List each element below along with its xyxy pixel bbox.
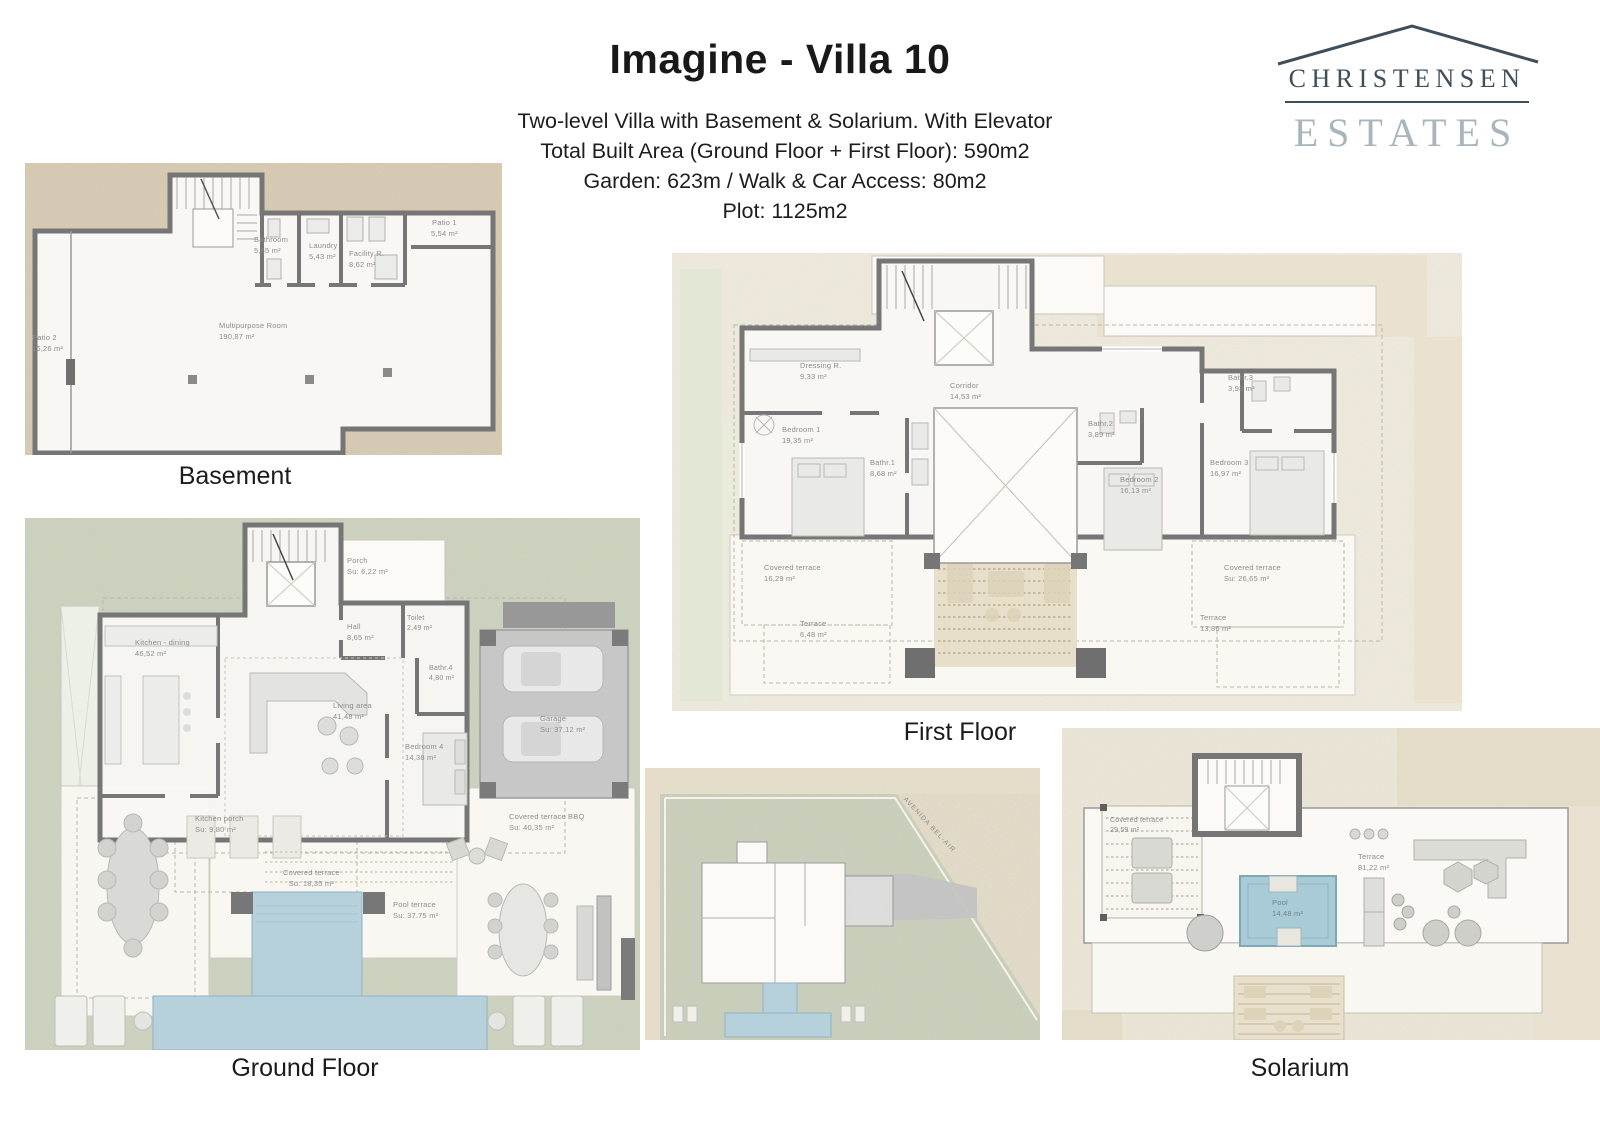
room-name: Bathr.1 — [870, 458, 897, 469]
room-area: 3,93 m² — [1228, 384, 1255, 395]
room-area: 8,68 m² — [870, 469, 897, 480]
room-label: Porch Su: 6,22 m² — [347, 556, 388, 578]
room-label: Bathr.2 3,89 m² — [1088, 419, 1115, 441]
room-name: Dressing R. — [800, 361, 841, 372]
basement-plan: Patio 2 16,26 m² Bathroom 5,65 m² Laundr… — [25, 163, 502, 455]
room-area: 3,89 m² — [1088, 430, 1115, 441]
room-label: Bedroom 2 16,13 m² — [1120, 475, 1159, 497]
room-label: Bathroom 5,65 m² — [254, 235, 288, 257]
room-name: Terrace — [800, 619, 827, 630]
room-name: Garage — [540, 714, 585, 725]
room-area: 13,86 m² — [1200, 624, 1231, 635]
room-area: 9,33 m² — [800, 372, 841, 383]
room-area: 46,52 m² — [135, 649, 190, 660]
logo-subname: ESTATES — [1262, 109, 1552, 156]
room-name: Kitchen porch — [195, 814, 243, 825]
solarium-drawing — [1062, 728, 1600, 1040]
room-name: Bathr.3 — [1228, 373, 1255, 384]
subtitle-line-1: Two-level Villa with Basement & Solarium… — [415, 106, 1155, 136]
room-label: Terrace 81,22 m² — [1358, 852, 1389, 874]
room-area: 16,13 m² — [1120, 486, 1159, 497]
room-area: 29,59 m² — [1110, 826, 1163, 836]
room-label: Covered terrace 29,59 m² — [1110, 816, 1163, 836]
room-label: Bathr.4 4,80 m² — [429, 664, 454, 684]
room-label: Pool 14,48 m² — [1272, 898, 1303, 920]
room-label: Terrace 6,48 m² — [800, 619, 827, 641]
room-name: Multipurpose Room — [219, 321, 287, 332]
room-name: Bedroom 4 — [405, 742, 444, 753]
room-label: Pool terrace Su: 37.75 m² — [393, 900, 438, 922]
room-label: Multipurpose Room 190,87 m² — [219, 321, 287, 343]
room-label: Bathr.1 8,68 m² — [870, 458, 897, 480]
room-label: Garage Su: 37,12 m² — [540, 714, 585, 736]
room-area: 8,65 m² — [347, 633, 374, 644]
ground-floor-drawing — [25, 518, 640, 1050]
room-name: Bathr.4 — [429, 664, 454, 674]
room-label: Laundry 5,43 m² — [309, 241, 338, 263]
room-name: Porch — [347, 556, 388, 567]
room-name: Covered terrace — [764, 563, 821, 574]
subtitle-line-4: Plot: 1125m2 — [415, 196, 1155, 226]
room-label: Patio 2 16,26 m² — [32, 333, 63, 355]
company-logo: CHRISTENSEN ESTATES — [1262, 18, 1552, 156]
caption-basement: Basement — [25, 462, 445, 491]
room-name: Laundry — [309, 241, 338, 252]
ground-floor-plan: Porch Su: 6,22 m² Kitchen - dining 46,52… — [25, 518, 640, 1050]
first-floor-drawing — [672, 253, 1462, 711]
room-area: 5,65 m² — [254, 246, 288, 257]
room-name: Kitchen - dining — [135, 638, 190, 649]
solarium-plan: Covered terrace 29,59 m² Terrace 81,22 m… — [1062, 728, 1600, 1040]
room-label: Living area 41,48 m² — [333, 701, 372, 723]
room-label: Bathr.3 3,93 m² — [1228, 373, 1255, 395]
room-name: Bathroom — [254, 235, 288, 246]
room-area: 8,62 m² — [349, 260, 384, 271]
room-area: Su: 37,12 m² — [540, 725, 585, 736]
room-area: 19,35 m² — [782, 436, 821, 447]
room-name: Covered terrace BBQ — [509, 812, 585, 823]
room-area: Su: 18,35 m² — [283, 879, 340, 890]
room-name: Toilet — [407, 614, 432, 624]
room-label: Kitchen - dining 46,52 m² — [135, 638, 190, 660]
room-label: Covered terrace Su: 26,65 m² — [1224, 563, 1281, 585]
room-label: Bedroom 4 14,38 m² — [405, 742, 444, 764]
room-label: Hall 8,65 m² — [347, 622, 374, 644]
room-label: Corridor 14,53 m² — [950, 381, 981, 403]
room-name: Bedroom 3 — [1210, 458, 1249, 469]
logo-name: CHRISTENSEN — [1285, 62, 1530, 103]
room-name: Living area — [333, 701, 372, 712]
room-area: 4,80 m² — [429, 674, 454, 684]
room-area: 16,26 m² — [32, 344, 63, 355]
room-label: Kitchen porch Su: 9,80 m² — [195, 814, 243, 836]
room-area: 6,48 m² — [800, 630, 827, 641]
caption-ground-floor: Ground Floor — [25, 1054, 585, 1083]
basement-drawing — [25, 163, 502, 455]
room-label: Covered terrace Su: 18,35 m² — [283, 868, 340, 890]
subtitle-line-2: Total Built Area (Ground Floor + First F… — [415, 136, 1155, 166]
room-area: 2,49 m² — [407, 624, 432, 634]
room-name: Patio 2 — [32, 333, 63, 344]
room-area: Su: 26,65 m² — [1224, 574, 1281, 585]
room-area: 14,53 m² — [950, 392, 981, 403]
room-name: Bathr.2 — [1088, 419, 1115, 430]
room-label: Dressing R. 9,33 m² — [800, 361, 841, 383]
room-name: Bedroom 1 — [782, 425, 821, 436]
subtitle: Two-level Villa with Basement & Solarium… — [415, 106, 1155, 226]
first-floor-plan: Dressing R. 9,33 m² Corridor 14,53 m² Be… — [672, 253, 1462, 711]
room-area: 16,29 m² — [764, 574, 821, 585]
site-plan-drawing — [645, 768, 1040, 1040]
room-label: Toilet 2,49 m² — [407, 614, 432, 634]
room-label: Bedroom 1 19,35 m² — [782, 425, 821, 447]
site-plan: AVENIDA BEL-AIR — [645, 768, 1040, 1040]
room-name: Corridor — [950, 381, 981, 392]
subtitle-line-3: Garden: 623m / Walk & Car Access: 80m2 — [415, 166, 1155, 196]
room-area: 16,97 m² — [1210, 469, 1249, 480]
room-label: Bedroom 3 16,97 m² — [1210, 458, 1249, 480]
room-area: 81,22 m² — [1358, 863, 1389, 874]
roof-icon — [1264, 18, 1550, 66]
room-label: Patio 1 5,54 m² — [431, 218, 458, 240]
room-area: 41,48 m² — [333, 712, 372, 723]
room-name: Hall — [347, 622, 374, 633]
caption-solarium: Solarium — [1020, 1054, 1580, 1083]
room-area: Su: 6,22 m² — [347, 567, 388, 578]
room-name: Pool — [1272, 898, 1303, 909]
room-area: Su: 37.75 m² — [393, 911, 438, 922]
room-name: Patio 1 — [431, 218, 458, 229]
room-name: Facility R. — [349, 249, 384, 260]
room-area: 5,43 m² — [309, 252, 338, 263]
room-area: 5,54 m² — [431, 229, 458, 240]
room-name: Covered terrace — [1110, 816, 1163, 826]
room-label: Terrace 13,86 m² — [1200, 613, 1231, 635]
room-area: Su: 9,80 m² — [195, 825, 243, 836]
room-label: Covered terrace BBQ Su: 40,35 m² — [509, 812, 585, 834]
room-area: 14,48 m² — [1272, 909, 1303, 920]
room-name: Covered terrace — [283, 868, 340, 879]
room-name: Terrace — [1200, 613, 1231, 624]
page-title: Imagine - Villa 10 — [420, 36, 1140, 83]
room-area: 14,38 m² — [405, 753, 444, 764]
room-name: Terrace — [1358, 852, 1389, 863]
page: Imagine - Villa 10 Two-level Villa with … — [0, 0, 1600, 1131]
room-area: Su: 40,35 m² — [509, 823, 585, 834]
room-name: Pool terrace — [393, 900, 438, 911]
room-name: Bedroom 2 — [1120, 475, 1159, 486]
room-label: Facility R. 8,62 m² — [349, 249, 384, 271]
room-label: Covered terrace 16,29 m² — [764, 563, 821, 585]
room-area: 190,87 m² — [219, 332, 287, 343]
room-name: Covered terrace — [1224, 563, 1281, 574]
